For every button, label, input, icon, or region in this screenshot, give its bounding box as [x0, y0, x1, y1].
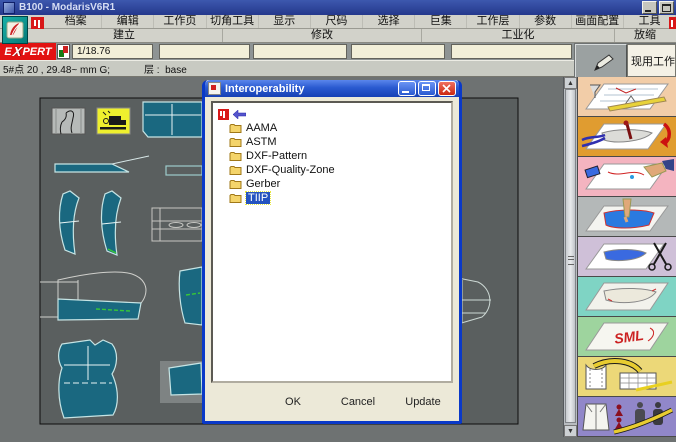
input-field-2[interactable]: [253, 44, 347, 59]
section-zoom[interactable]: 放缩: [615, 29, 675, 42]
menu-parameters[interactable]: 参数: [520, 15, 572, 28]
function-tile-menu: SML: [577, 77, 676, 437]
dialog-titlebar[interactable]: Interoperability: [205, 80, 459, 97]
scroll-down-icon[interactable]: ▼: [564, 425, 577, 437]
list-item[interactable]: AAMA: [213, 121, 451, 135]
pencil-icon: [588, 50, 614, 74]
menu-layers[interactable]: 工作层: [467, 15, 519, 28]
list-item-selected[interactable]: TIIP: [213, 191, 451, 205]
cancel-button[interactable]: Cancel: [334, 395, 382, 409]
folder-icon: [229, 151, 242, 161]
menu-sheet[interactable]: 工作页: [154, 15, 206, 28]
app-badge-icon: [218, 109, 229, 120]
menu-corner-tools[interactable]: 切角工具: [207, 15, 259, 28]
folder-up-item[interactable]: [213, 107, 451, 121]
ok-button[interactable]: OK: [269, 395, 317, 409]
folder-icon: [229, 165, 242, 175]
tile-grading-sizes[interactable]: SML: [577, 317, 676, 357]
interoperability-dialog: Interoperability AAMA ASTM DXF-Pattern: [202, 80, 462, 424]
tile-pattern-modification[interactable]: [577, 117, 676, 157]
window-titlebar: B100 - ModarisV6R1: [0, 0, 676, 15]
expert-mode-badge: EXPERT: [0, 43, 56, 60]
menu-sizes[interactable]: 尺码: [311, 15, 363, 28]
tile-pattern-correction[interactable]: [577, 157, 676, 197]
update-button[interactable]: Update: [399, 395, 447, 409]
function-bar: 建立 修改 工业化 放缩: [0, 29, 676, 43]
input-field-1[interactable]: [159, 44, 250, 59]
dialog-footer: OK Cancel Update: [205, 387, 459, 417]
input-field-4[interactable]: [451, 44, 572, 59]
status-bar: 5#点 20 , 29.48~ mm G; 层 : base: [0, 60, 574, 77]
dialog-maximize-button[interactable]: [418, 81, 436, 96]
back-arrow-icon: [233, 110, 246, 119]
section-modify[interactable]: 修改: [223, 29, 422, 42]
tile-measurement-chart[interactable]: [577, 357, 676, 397]
menu-bar: 档案 编辑 工作页 切角工具 显示 尺码 选择 巨集 工作层 参数 画面配置 工…: [0, 15, 676, 29]
scrollbar-thumb[interactable]: [565, 89, 576, 423]
layer-indicator: 层 : base: [144, 61, 187, 76]
menu-selection[interactable]: 选择: [363, 15, 415, 28]
scroll-up-icon[interactable]: ▲: [564, 77, 577, 89]
flag-icon[interactable]: [57, 44, 70, 59]
cursor-coordinates: 5#点 20 , 29.48~ mm G;: [3, 61, 110, 76]
tile-piece-extraction[interactable]: [577, 197, 676, 237]
sidebar-scrollbar[interactable]: ▲ ▼: [563, 77, 577, 437]
menu-screen-config[interactable]: 画面配置: [572, 15, 624, 28]
dialog-minimize-button[interactable]: [398, 81, 416, 96]
window-title: B100 - ModarisV6R1: [19, 2, 115, 13]
edit-tool-button[interactable]: [575, 44, 627, 79]
quill-book-icon: [6, 20, 24, 40]
maximize-button[interactable]: [659, 1, 674, 14]
sewing-machine-tile[interactable]: [97, 108, 130, 134]
app-icon: [3, 2, 15, 14]
dialog-icon: [208, 82, 221, 95]
active-page-button[interactable]: 现用工作页: [627, 44, 676, 77]
tile-marker-sheet[interactable]: [577, 277, 676, 317]
folder-icon: [229, 193, 242, 203]
modaris-logo: [2, 16, 28, 44]
scale-field[interactable]: 1/18.76: [72, 44, 153, 59]
folder-icon: [229, 137, 242, 147]
dialog-title: Interoperability: [225, 83, 304, 95]
list-item[interactable]: DXF-Quality-Zone: [213, 163, 451, 177]
tile-fitting-simulation[interactable]: [577, 397, 676, 437]
menu-display[interactable]: 显示: [259, 15, 311, 28]
tile-flat-pattern-drafting[interactable]: [577, 77, 676, 117]
list-item[interactable]: Gerber: [213, 177, 451, 191]
folder-icon: [229, 179, 242, 189]
tile-pattern-cutting[interactable]: [577, 237, 676, 277]
menu-edit[interactable]: 编辑: [102, 15, 154, 28]
folder-icon: [229, 123, 242, 133]
minimize-button[interactable]: [642, 1, 657, 14]
list-item[interactable]: ASTM: [213, 135, 451, 149]
menu-file[interactable]: 档案: [50, 15, 102, 28]
section-industrialization[interactable]: 工业化: [422, 29, 615, 42]
garment-sketch-tile[interactable]: [52, 108, 85, 134]
list-item[interactable]: DXF-Pattern: [213, 149, 451, 163]
tool-row: EXPERT 1/18.76: [0, 43, 574, 60]
dialog-close-icon[interactable]: [438, 81, 456, 96]
input-field-3[interactable]: [351, 44, 445, 59]
section-create[interactable]: 建立: [26, 29, 223, 42]
menu-macro[interactable]: 巨集: [415, 15, 467, 28]
format-list[interactable]: AAMA ASTM DXF-Pattern DXF-Quality-Zone G…: [211, 101, 453, 383]
